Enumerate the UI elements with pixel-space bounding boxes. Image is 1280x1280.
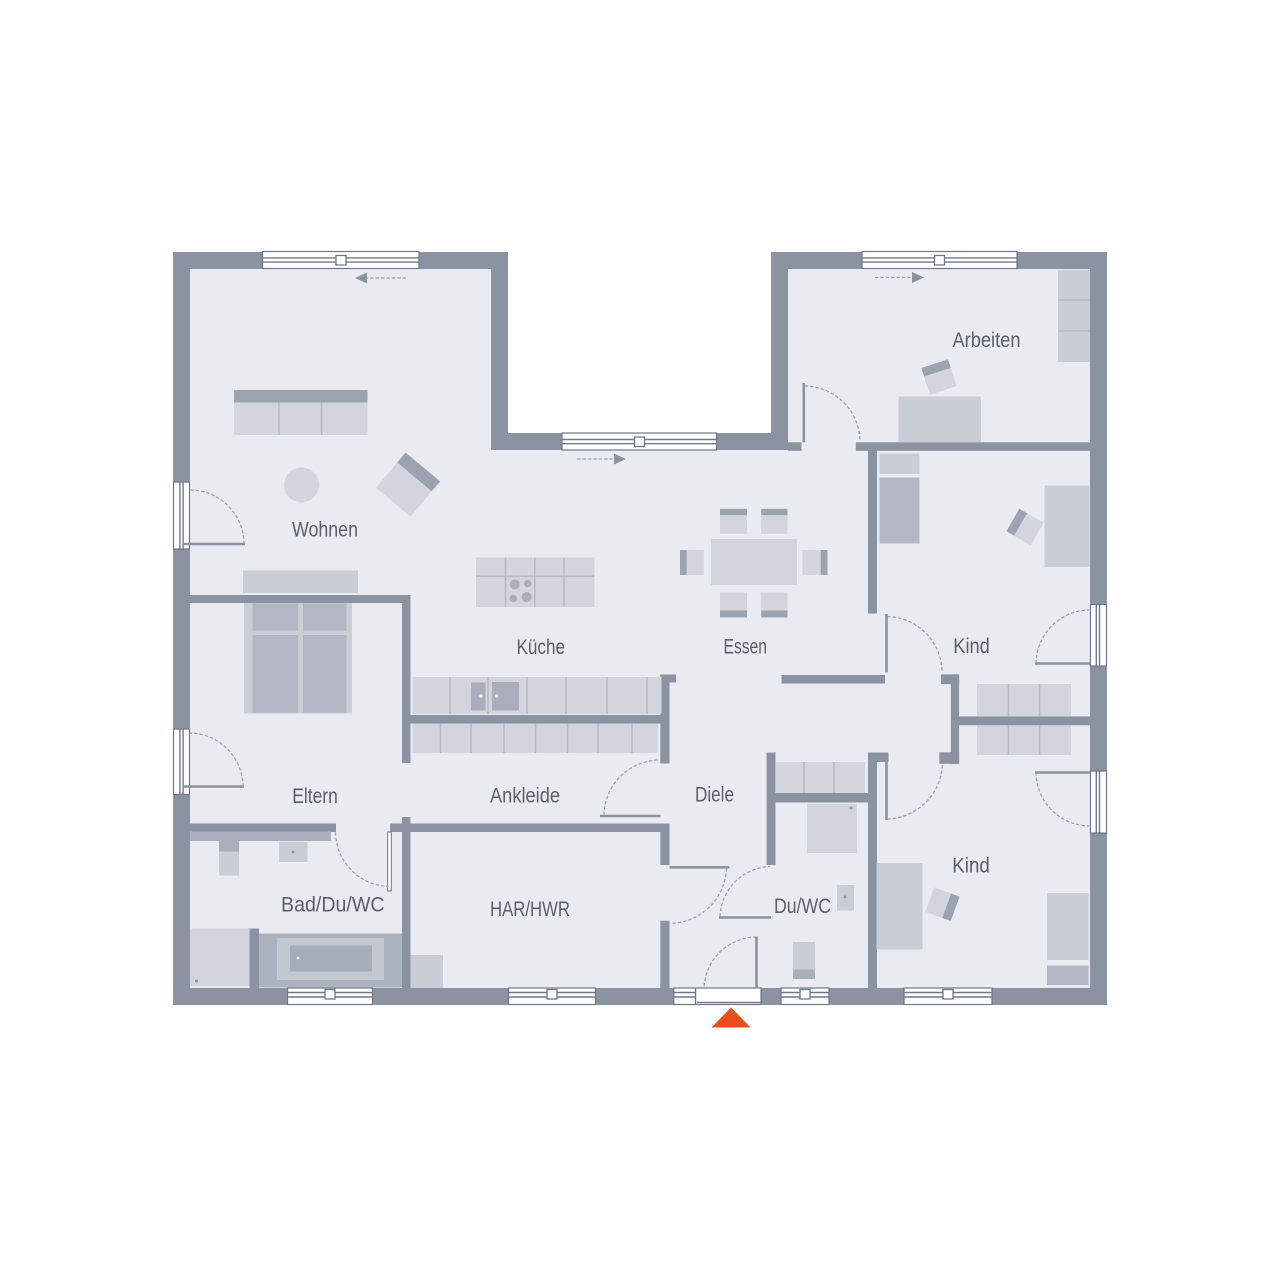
svg-text:Wohnen: Wohnen	[292, 518, 358, 542]
svg-text:Ankleide: Ankleide	[490, 784, 560, 808]
svg-text:Diele: Diele	[695, 783, 734, 807]
svg-text:Küche: Küche	[517, 635, 566, 659]
svg-text:Du/WC: Du/WC	[774, 894, 831, 918]
svg-text:Kind: Kind	[952, 854, 990, 878]
svg-text:Essen: Essen	[724, 635, 768, 659]
svg-text:HAR/HWR: HAR/HWR	[490, 897, 570, 921]
svg-text:Eltern: Eltern	[292, 784, 338, 808]
svg-text:Bad/Du/WC: Bad/Du/WC	[281, 893, 385, 917]
svg-text:Arbeiten: Arbeiten	[953, 328, 1021, 352]
svg-text:Kind: Kind	[953, 634, 990, 658]
